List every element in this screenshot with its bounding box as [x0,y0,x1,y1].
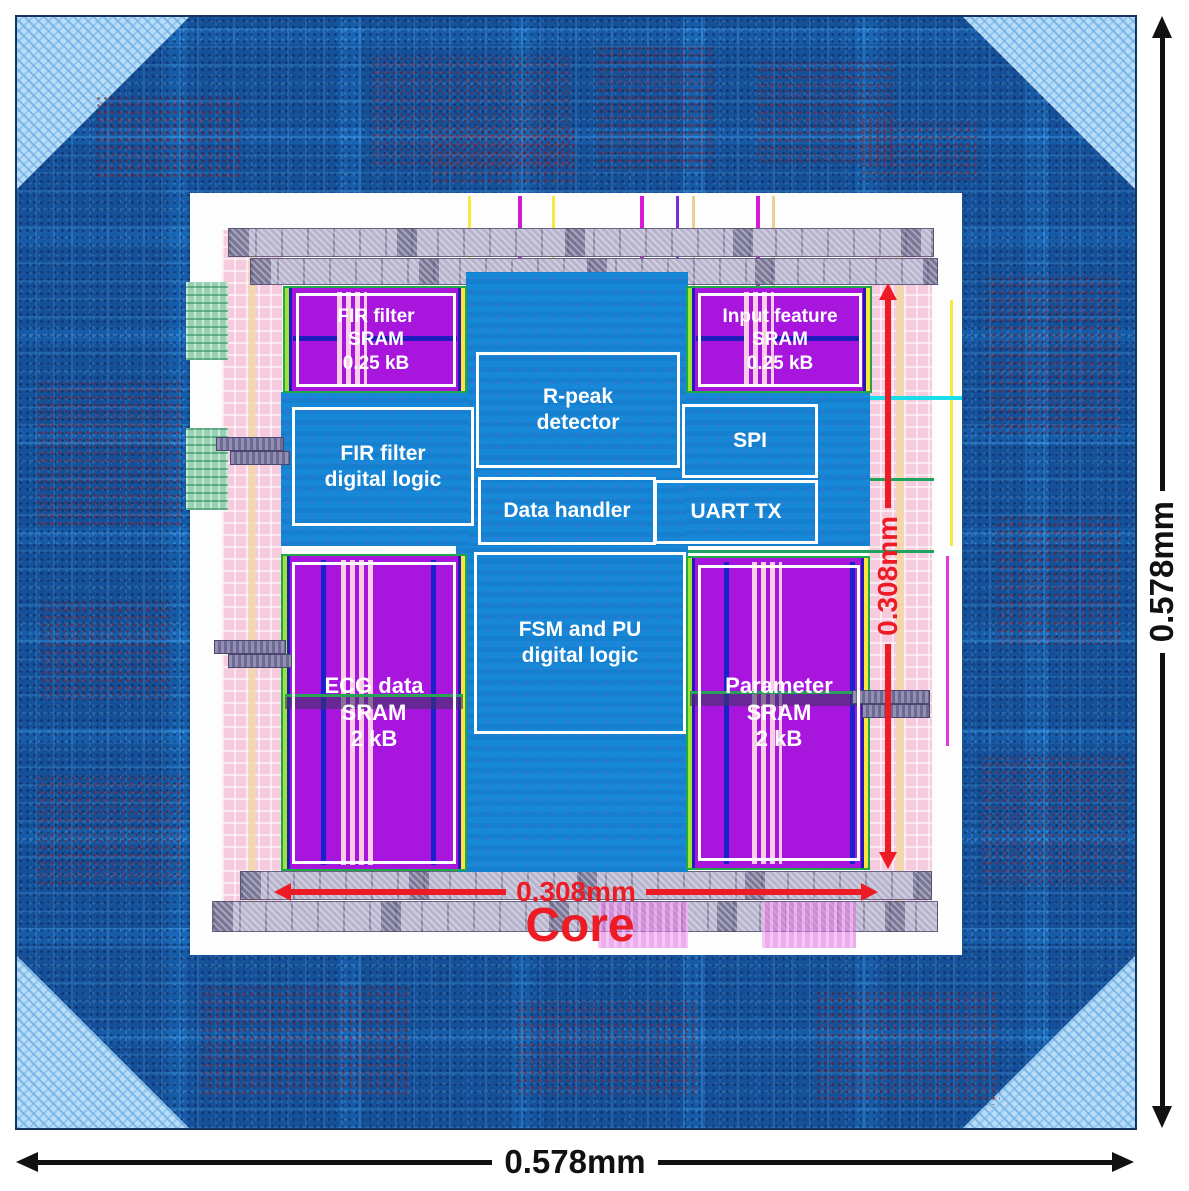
parameter-sram-label: Parameter SRAM 2 kB [698,565,860,861]
connector-bar [216,437,284,451]
pad-speckle [95,95,245,180]
metal-line [946,556,949,746]
data-handler-label: Data handler [478,477,656,545]
power-rail-top-1 [228,228,934,257]
arrowhead-down-icon [879,852,897,869]
connector-bar [230,451,290,465]
core-title: Core [460,902,700,960]
dimension-line [291,889,506,895]
dimension-line [1160,38,1165,491]
dimension-line [885,300,891,508]
connector-bar [214,640,286,654]
pad-speckle [35,775,185,885]
chip-die-figure: FIR filter SRAM 0.25 kB Input feature SR… [0,0,1189,1191]
arrowhead-down-icon [1152,1106,1172,1128]
arrowhead-up-icon [1152,16,1172,38]
metal-line [950,300,953,546]
dimension-line [38,1160,492,1165]
fir-filter-logic-label: FIR filter digital logic [292,407,474,526]
uart-tx-label: UART TX [654,480,818,544]
fsm-pu-logic-label: FSM and PU digital logic [474,552,686,734]
corner-chamfer-bottom-left [17,956,189,1128]
ecg-data-sram-label: ECG data SRAM 2 kB [292,562,456,864]
dimension-line [658,1160,1112,1165]
arrowhead-left-icon [274,883,291,901]
pad-speckle [815,990,1000,1105]
die-width-dimension: 0.578mm [16,1140,1134,1184]
filler-patch [186,282,228,360]
arrowhead-right-icon [861,883,878,901]
pad-speckle [515,1000,700,1095]
pad-speckle [985,275,1120,435]
pad-speckle [200,985,410,1100]
dimension-line [1160,653,1165,1106]
connector-bar [228,654,292,668]
magenta-patch [762,902,856,948]
pad-speckle [595,45,715,170]
power-strap-left [222,230,282,932]
pad-speckle [430,128,580,186]
core-height-dimension: 0.308mm [871,283,905,869]
arrowhead-left-icon [16,1152,38,1172]
spi-label: SPI [682,404,818,478]
dimension-line [885,644,891,852]
corner-chamfer-top-right [963,17,1135,189]
pad-speckle [860,120,980,180]
input-feature-sram-label: Input feature SRAM 0.25 kB [698,293,862,387]
pad-speckle [35,380,180,525]
die-width-value: 0.578mm [504,1143,645,1181]
fir-filter-sram-label: FIR filter SRAM 0.25 kB [296,293,456,387]
arrowhead-up-icon [879,283,897,300]
pad-speckle [995,515,1120,645]
arrowhead-right-icon [1112,1152,1134,1172]
pad-speckle [40,600,170,700]
r-peak-detector-label: R-peak detector [476,352,680,468]
die-height-dimension: 0.578mm [1140,16,1184,1128]
core-height-value: 0.308mm [872,516,904,636]
die-height-value: 0.578mm [1143,501,1181,642]
pad-speckle [980,755,1125,885]
dimension-line [646,889,861,895]
